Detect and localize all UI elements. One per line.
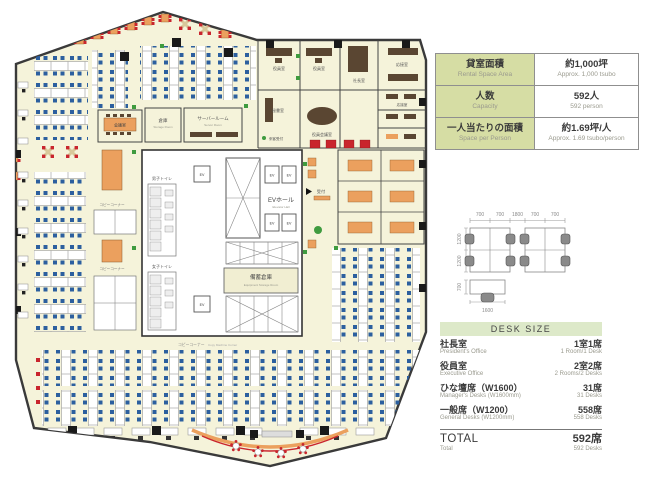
total-label: TOTAL <box>440 433 479 446</box>
reserve-storage-room: 備蓄倉庫 Equipment Storage Room <box>224 268 298 293</box>
desk-size-row: ひな壇席（W1600）Manager's Desks (W1600mm) 31席… <box>440 383 602 405</box>
spec-value-en: Approx. 1,000 tsubo <box>557 71 615 79</box>
desk-area-bottom-2 <box>42 390 420 426</box>
svg-text:コピーコーナー: コピーコーナー <box>99 202 125 207</box>
desk-size-total-row: TOTALTotal 592席592 Desks <box>440 429 602 455</box>
manager-desk <box>470 280 505 302</box>
svg-text:700: 700 <box>476 212 485 218</box>
row-label-en: Manager's Desks (W1600mm) <box>440 393 523 400</box>
spec-value-en: 592 person <box>570 103 603 111</box>
server-room: サーバールーム Server Room <box>184 108 242 142</box>
svg-text:EV: EV <box>270 174 275 178</box>
copy-corner-bottom: コピーコーナー Copy Machine Corner <box>178 342 237 347</box>
storage-room: 倉庫 Storage Room <box>145 108 181 142</box>
svg-text:役員会議室: 役員会議室 <box>312 131 332 137</box>
desk-size-row: 一般席（W1200）General Desks (W1200mm) 558席55… <box>440 405 602 427</box>
svg-text:Copy Machine Corner: Copy Machine Corner <box>208 343 237 347</box>
row-label-en: General Desks (W1200mm) <box>440 415 514 422</box>
svg-text:Storage Room: Storage Room <box>153 125 173 129</box>
svg-text:コピーコーナー: コピーコーナー <box>178 342 205 347</box>
desk-area-left <box>34 172 86 332</box>
row-value-jp: 31席 <box>577 383 602 393</box>
row-value-jp: 558席 <box>574 405 602 415</box>
svg-text:Meeting Space: Meeting Space <box>245 31 265 35</box>
desk-area-right <box>332 248 420 342</box>
row-value-jp: 1室1席 <box>561 339 602 349</box>
spec-label-en: Rental Space Area <box>458 71 512 79</box>
desk-size-title: DESK SIZE <box>440 322 602 336</box>
desk-cluster <box>520 228 570 272</box>
desk-area-bottom-1 <box>42 350 420 386</box>
svg-text:1600: 1600 <box>482 308 493 314</box>
row-label-jp: 社長室 <box>440 339 487 349</box>
svg-text:役員室: 役員室 <box>313 65 325 71</box>
svg-text:700: 700 <box>551 212 560 218</box>
small-meeting-rooms <box>338 150 424 244</box>
svg-text:Elevator Hall: Elevator Hall <box>272 205 289 209</box>
spec-row-capacity: 人数 Capacity 592人 592 person <box>436 85 638 117</box>
spec-row-rental-area: 貸室面積 Rental Space Area 約1,000坪 Approx. 1… <box>436 54 638 85</box>
row-value-en: 1 Room/1 Desk <box>561 349 602 356</box>
total-value-en: 592 Desks <box>573 446 602 453</box>
row-label-en: President's Office <box>440 349 487 356</box>
svg-text:来客受付: 来客受付 <box>269 136 284 141</box>
core: EV EV EV EV EVホール Elevator Hall EV EV <box>142 150 302 336</box>
svg-text:EV: EV <box>287 174 292 178</box>
svg-text:EV: EV <box>270 222 275 226</box>
svg-text:Server Room: Server Room <box>204 123 222 127</box>
total-label-en: Total <box>440 446 479 453</box>
svg-text:女子トイレ: 女子トイレ <box>152 263 172 269</box>
desk-cluster <box>465 228 515 272</box>
spec-label-jp: 一人当たりの面積 <box>447 124 523 135</box>
svg-text:EV: EV <box>287 222 292 226</box>
svg-text:応接室: 応接室 <box>396 61 408 67</box>
desk-size-row: 社長室President's Office 1室1席1 Room/1 Desk <box>440 339 602 361</box>
svg-text:700: 700 <box>457 283 463 292</box>
row-value-jp: 2室2席 <box>555 361 602 371</box>
row-label-en: Executive Office <box>440 371 483 378</box>
spec-label-en: Space per Person <box>459 135 511 143</box>
spec-value-jp: 592人 <box>574 92 599 103</box>
row-label-jp: 役員室 <box>440 361 483 371</box>
svg-text:1800: 1800 <box>512 212 523 218</box>
svg-text:コピーコーナー: コピーコーナー <box>99 266 125 271</box>
desk-dimension-diagram: 700 700 1800 700 700 1200 1200 700 1600 <box>440 200 640 325</box>
svg-text:ミーティングスペース: ミーティングスペース <box>233 23 278 30</box>
spec-value-jp: 約1,000坪 <box>565 60 608 71</box>
svg-text:倉庫: 倉庫 <box>159 117 168 124</box>
svg-text:1200: 1200 <box>457 255 463 266</box>
svg-text:男子トイレ: 男子トイレ <box>152 175 172 181</box>
svg-text:受付: 受付 <box>317 188 325 195</box>
row-label-jp: ひな壇席（W1600） <box>440 383 523 393</box>
total-value: 592席 <box>573 433 602 446</box>
spec-label-en: Capacity <box>472 103 497 111</box>
row-value-en: 31 Desks <box>577 393 602 400</box>
svg-text:700: 700 <box>531 212 540 218</box>
svg-text:EV: EV <box>200 173 205 177</box>
svg-text:1200: 1200 <box>457 233 463 244</box>
spec-label-jp: 貸室面積 <box>466 60 504 71</box>
desk-size-row: 役員室Executive Office 2室2席2 Rooms/2 Desks <box>440 361 602 383</box>
spec-row-space-per-person: 一人当たりの面積 Space per Person 約1.69坪/人 Appro… <box>436 117 638 149</box>
svg-text:社長室: 社長室 <box>353 77 365 83</box>
svg-text:会議室: 会議室 <box>114 122 126 128</box>
spec-table: 貸室面積 Rental Space Area 約1,000坪 Approx. 1… <box>435 53 639 150</box>
womens-toilet: 女子トイレ <box>148 263 176 330</box>
svg-text:備蓄倉庫: 備蓄倉庫 <box>250 273 273 281</box>
ev-hall-label: EVホール <box>268 197 294 204</box>
spec-value-jp: 約1.69坪/人 <box>562 124 612 135</box>
svg-text:役員室: 役員室 <box>273 65 285 71</box>
svg-text:EV: EV <box>200 303 205 307</box>
mens-toilet: 男子トイレ <box>148 175 176 256</box>
meeting-room: 会議室 <box>98 110 142 142</box>
svg-text:Equipment Storage Room: Equipment Storage Room <box>244 283 279 287</box>
spec-label-jp: 人数 <box>475 92 494 103</box>
svg-text:応接室: 応接室 <box>397 102 408 107</box>
svg-text:秘書室: 秘書室 <box>272 107 284 113</box>
svg-text:700: 700 <box>496 212 505 218</box>
row-value-en: 2 Rooms/2 Desks <box>555 371 602 378</box>
row-value-en: 558 Desks <box>574 415 602 422</box>
row-label-jp: 一般席（W1200） <box>440 405 514 415</box>
desk-area-top-center <box>140 46 256 100</box>
spec-value-en: Approx. 1.69 tsubo/person <box>548 135 624 143</box>
desk-size-table: DESK SIZE 社長室President's Office 1室1席1 Ro… <box>440 322 602 455</box>
